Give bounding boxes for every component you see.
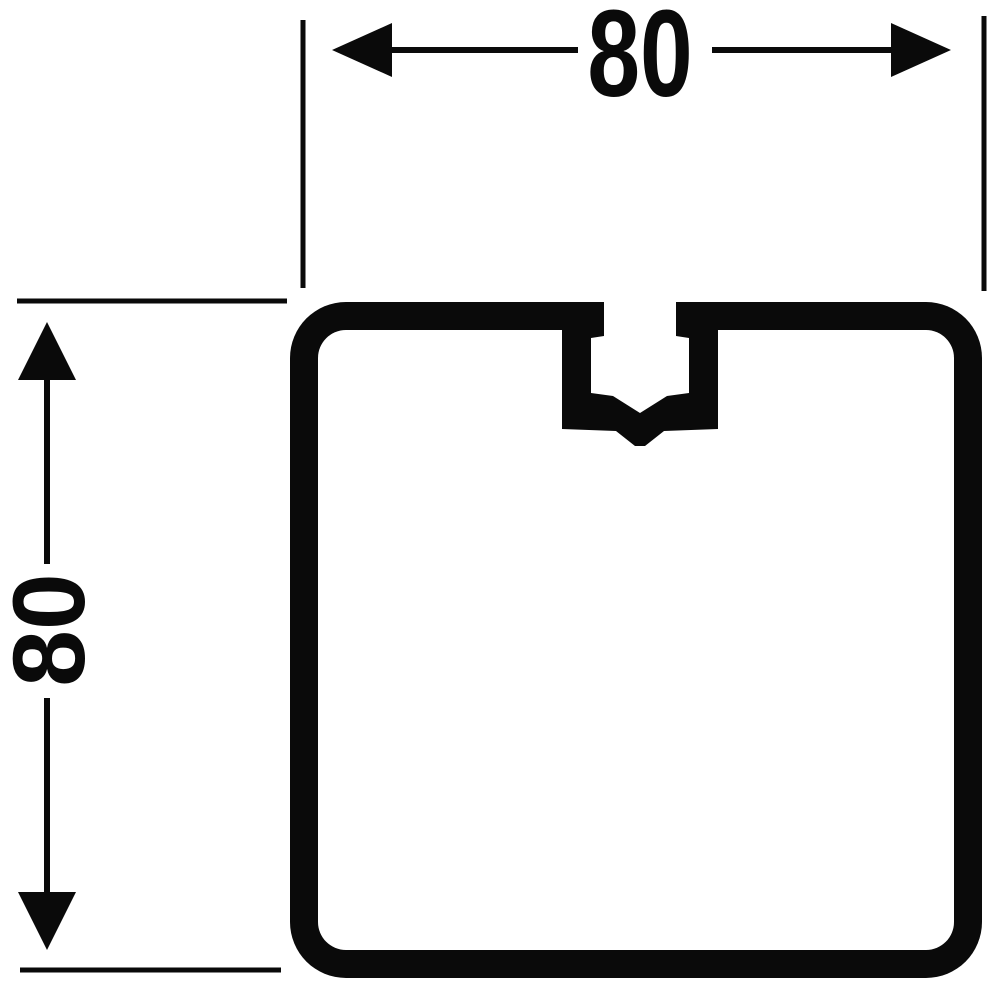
height-dimension-label: 80 [0, 573, 106, 686]
profile-drawing: 80 80 [0, 0, 1008, 1000]
width-dimension: 80 [303, 0, 984, 291]
profile-cross-section [290, 292, 982, 978]
arrow-up-icon [18, 322, 76, 380]
height-dimension: 80 [0, 301, 287, 970]
drawing-sheet: 80 80 [0, 0, 1008, 1000]
arrow-right-icon [891, 23, 951, 77]
arrow-down-icon [18, 892, 76, 950]
arrow-left-icon [332, 23, 392, 77]
slot-opening [604, 292, 676, 338]
width-dimension-label: 80 [587, 0, 692, 123]
